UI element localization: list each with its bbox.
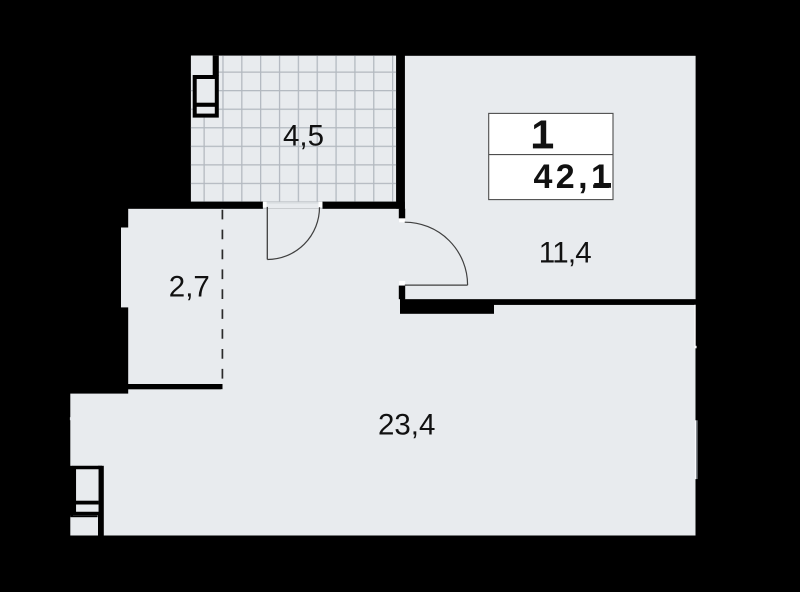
svg-text:11,4: 11,4 [539,237,591,270]
svg-text:23,4: 23,4 [378,409,435,442]
svg-text:1: 1 [531,113,553,157]
svg-text:42,1: 42,1 [534,158,614,196]
svg-text:4,5: 4,5 [283,119,324,152]
svg-text:2,7: 2,7 [169,271,210,304]
